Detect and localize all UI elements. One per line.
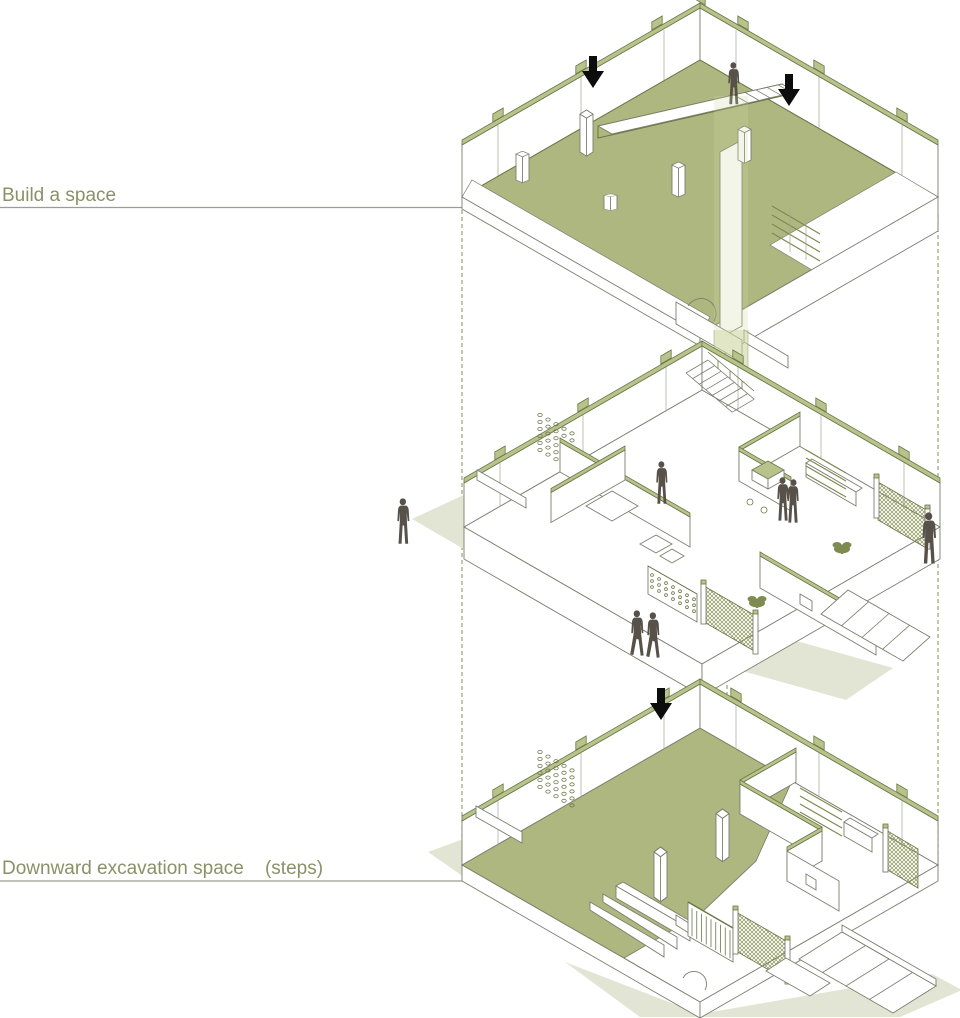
- exploded-axonometric-page: Build a space Downward excavation space …: [0, 0, 960, 1018]
- middle-level: [412, 341, 940, 700]
- excavation-label: Downward excavation space (steps): [2, 858, 323, 879]
- lower-column-a: [654, 847, 667, 902]
- lower-level: [428, 679, 960, 1018]
- exploded-axon-diagram: Build a space Downward excavation space …: [0, 0, 960, 1018]
- build-space-label: Build a space: [2, 185, 116, 206]
- figure-standalone-left: [397, 498, 409, 543]
- upper-level: [462, 0, 938, 368]
- lower-column-b: [716, 809, 729, 862]
